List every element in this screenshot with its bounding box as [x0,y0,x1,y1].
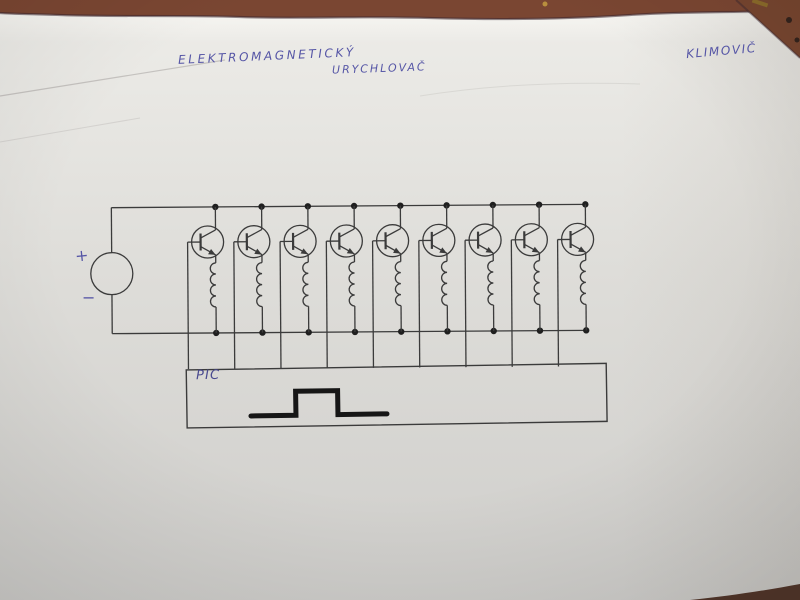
pic-label: PIC [196,368,221,383]
diagram-canvas [0,0,800,600]
source-plus-label: + [74,245,89,265]
vignette [0,0,800,600]
photo-of-circuit-diagram: ELEKTROMAGNETICKÝ URYCHLOVAČ KLIMOVIČ + … [0,0,800,600]
source-minus-label: − [82,288,95,307]
